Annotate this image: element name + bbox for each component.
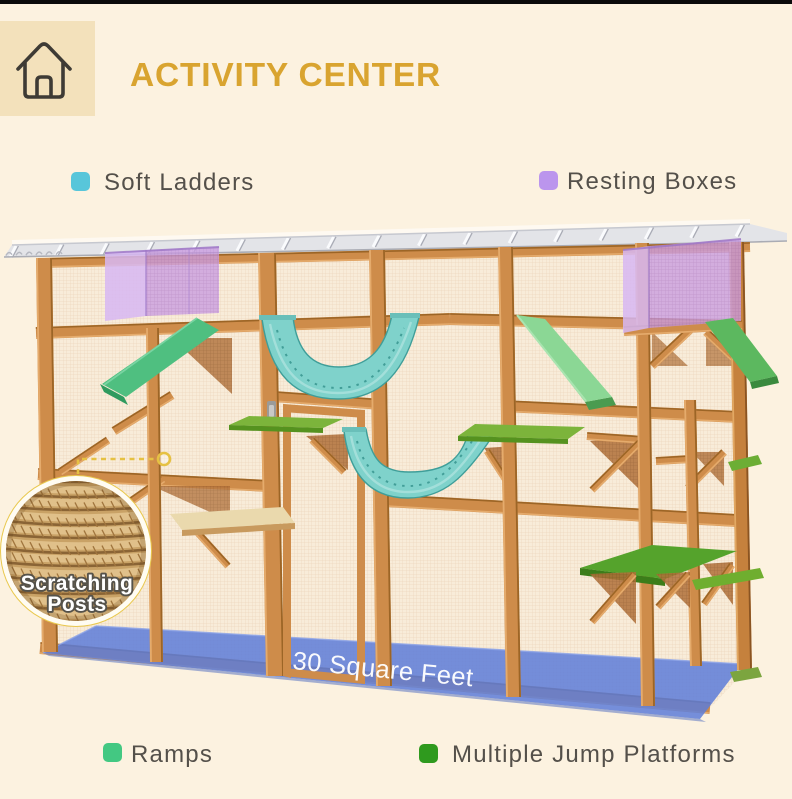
svg-text:Soft Ladders: Soft Ladders bbox=[104, 169, 255, 196]
svg-text:Posts: Posts bbox=[47, 593, 106, 616]
svg-text:Ramps: Ramps bbox=[131, 741, 213, 768]
svg-text:Multiple Jump Platforms: Multiple Jump Platforms bbox=[452, 741, 736, 768]
svg-text:Resting Boxes: Resting Boxes bbox=[567, 168, 737, 195]
svg-text:ACTIVITY CENTER: ACTIVITY CENTER bbox=[130, 57, 441, 94]
svg-text:Scratching: Scratching bbox=[21, 572, 134, 595]
